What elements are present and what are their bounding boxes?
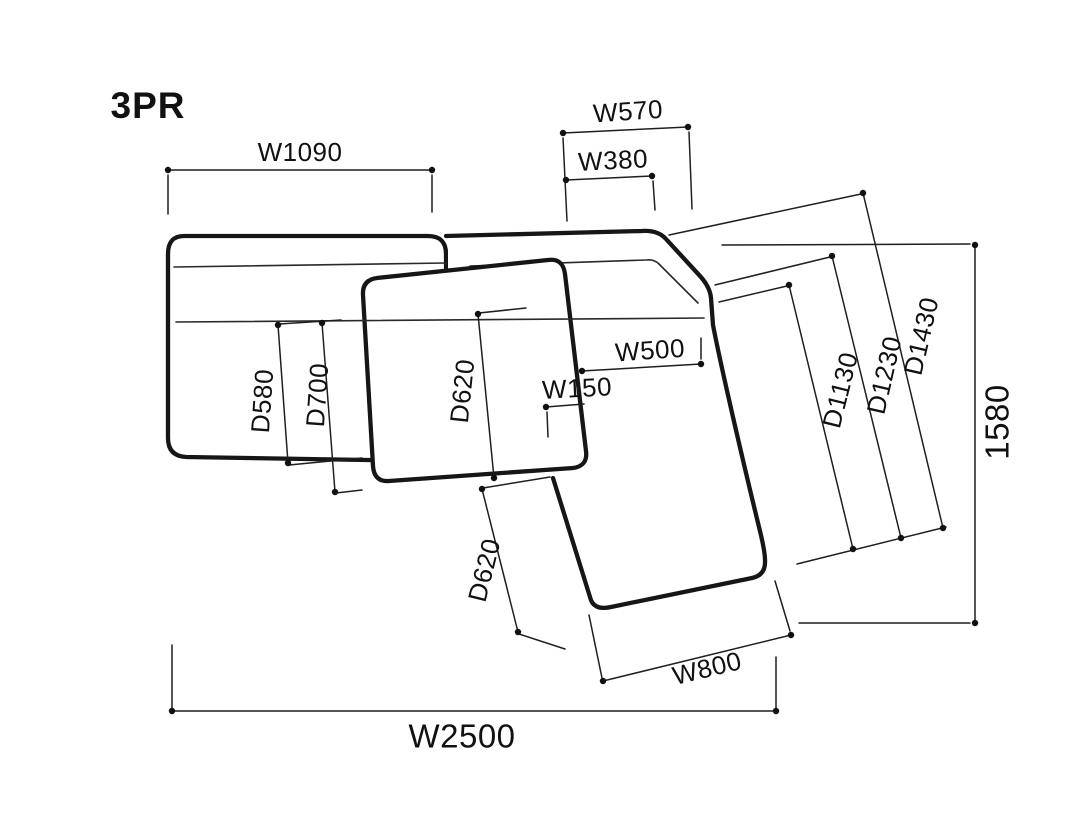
model-title: 3PR bbox=[111, 85, 186, 126]
ext-1580-top bbox=[722, 244, 970, 245]
furniture-dimension-diagram: 3PR W1090 W570 W380 W500 W150 D580 D700 … bbox=[0, 0, 1080, 819]
dim-label-w380: W380 bbox=[577, 143, 648, 177]
dim-line-w570 bbox=[563, 127, 688, 133]
ext-d1130-top bbox=[719, 286, 787, 302]
dim-label-w500: W500 bbox=[614, 333, 686, 368]
dim-label-d620-front: D620 bbox=[462, 535, 507, 605]
ext-d1430-top bbox=[669, 194, 861, 235]
dim-label-d1230: D1230 bbox=[861, 333, 908, 417]
ext-w570-right bbox=[689, 132, 692, 209]
dim-label-w800: W800 bbox=[670, 645, 745, 690]
dim-label-d580: D580 bbox=[245, 368, 279, 434]
ext-d-series-bottom bbox=[797, 527, 946, 564]
dim-label-w2500: W2500 bbox=[408, 718, 515, 755]
dim-label-d1430: D1430 bbox=[898, 294, 945, 378]
dim-label-1580: 1580 bbox=[979, 384, 1016, 459]
sofa-dimension-drawing: 3PR W1090 W570 W380 W500 W150 D580 D700 … bbox=[0, 0, 1080, 819]
dim-label-w150: W150 bbox=[541, 371, 612, 405]
ext-w150-left bbox=[547, 412, 548, 437]
ext-w380-right bbox=[653, 181, 655, 210]
ext-w800-left bbox=[589, 615, 602, 678]
dim-label-d1130: D1130 bbox=[816, 349, 864, 431]
dim-label-w1090: W1090 bbox=[258, 137, 343, 167]
ext-d620-front-bottom bbox=[519, 634, 565, 649]
dim-label-w570: W570 bbox=[592, 94, 664, 129]
ext-d1230-top bbox=[715, 257, 830, 285]
dim-label-d700: D700 bbox=[300, 362, 334, 428]
ext-w800-right bbox=[775, 581, 790, 631]
ext-d700-bottom bbox=[336, 490, 362, 493]
